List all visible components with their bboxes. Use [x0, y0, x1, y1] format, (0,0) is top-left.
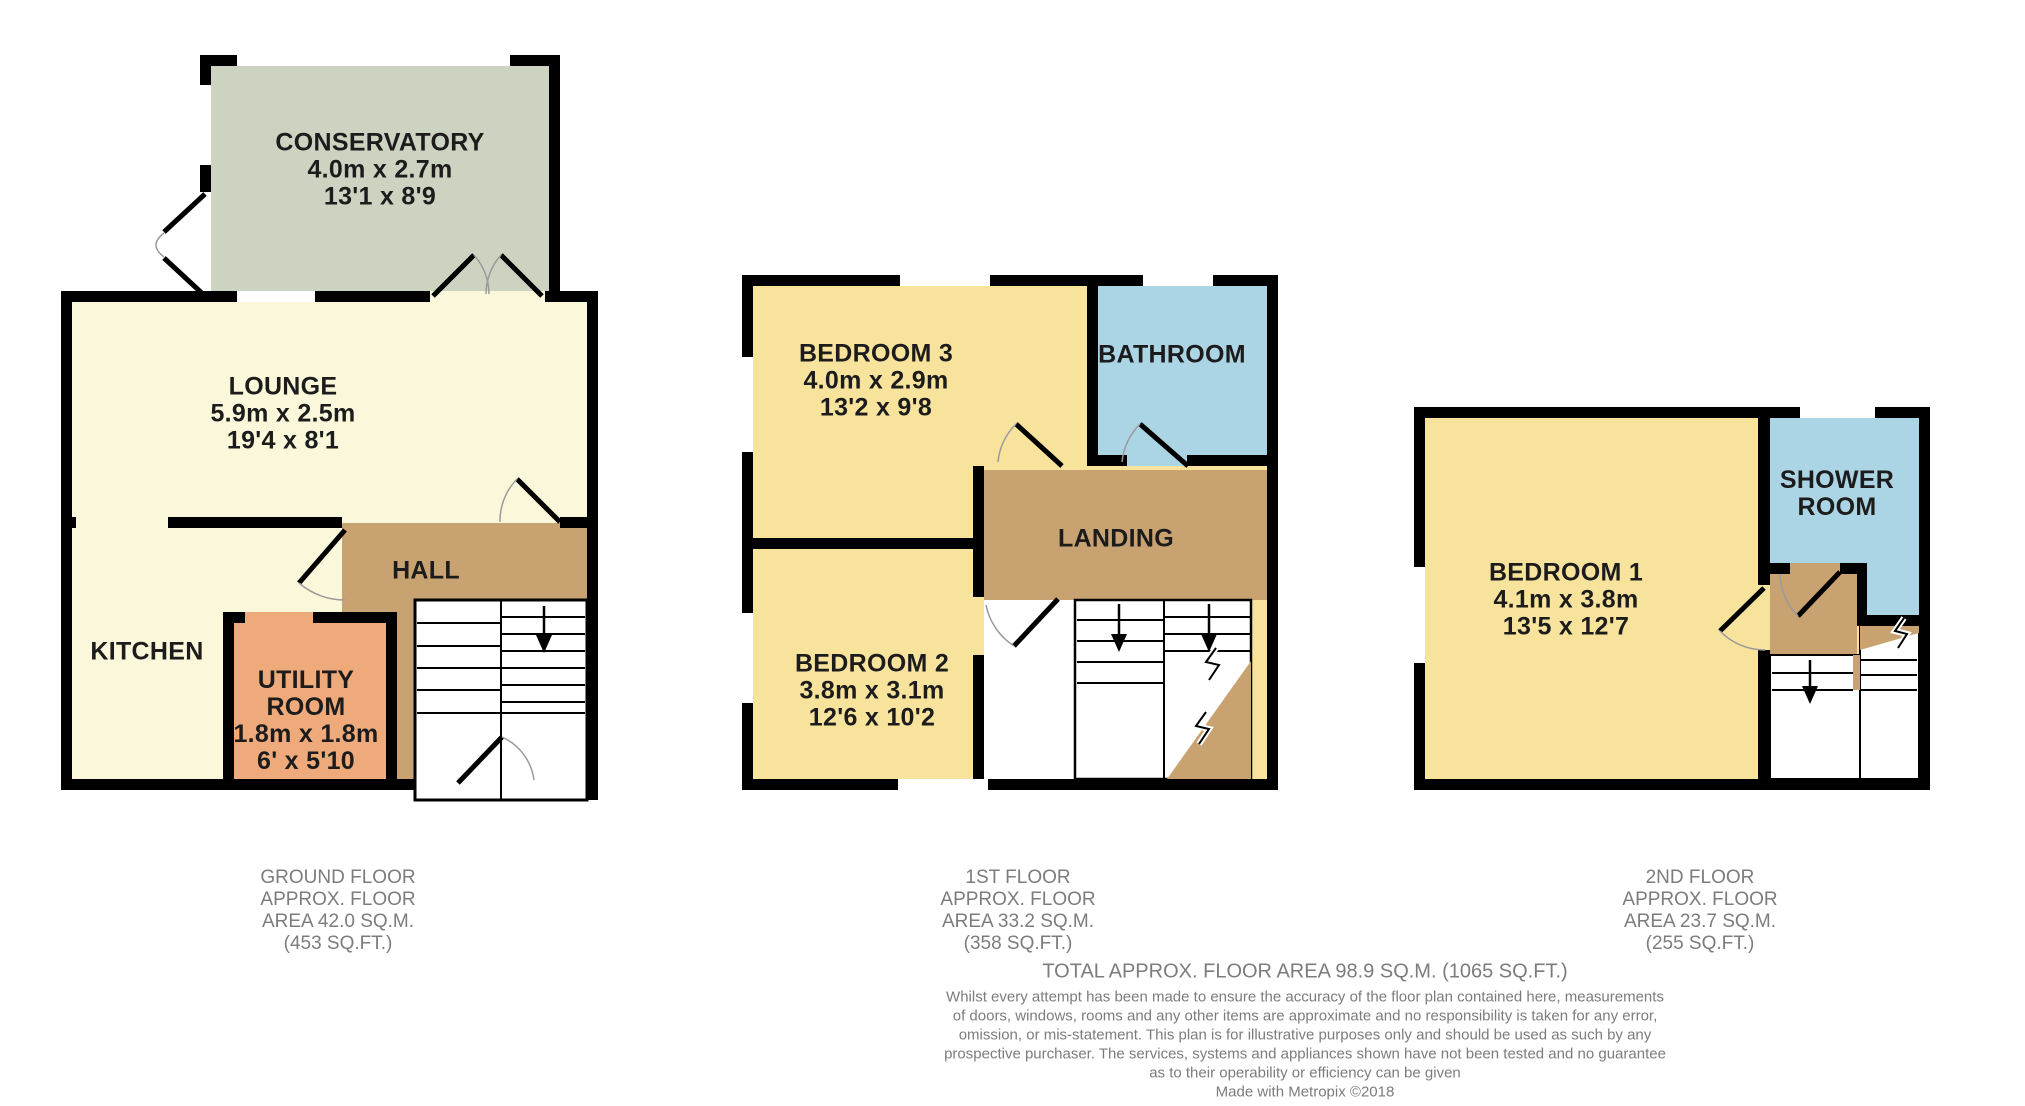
wall: [560, 517, 598, 528]
wall: [1187, 455, 1267, 466]
caption-line: (453 SQ.FT.): [260, 933, 415, 955]
wall: [313, 612, 397, 623]
window: [742, 357, 753, 452]
room-landing-2: [1770, 563, 1857, 655]
wall: [223, 612, 234, 779]
room-name: HALL: [392, 558, 460, 585]
room-label-bedroom-2: BEDROOM 2 3.8m x 3.1m 12'6 x 10'2: [795, 651, 949, 732]
disclaimer-line: as to their operability or efficiency ca…: [944, 1064, 1666, 1083]
door-leaf: [164, 258, 205, 296]
floorplan-canvas: CONSERVATORY 4.0m x 2.7m 13'1 x 8'9 LOUN…: [0, 0, 2025, 1106]
wall: [545, 291, 560, 302]
wall: [587, 291, 598, 800]
room-dims-imperial: 13'1 x 8'9: [275, 184, 484, 211]
caption-line: 2ND FLOOR: [1622, 867, 1777, 889]
room-label-bedroom-1: BEDROOM 1 4.1m x 3.8m 13'5 x 12'7: [1489, 560, 1643, 641]
wall: [1087, 286, 1098, 466]
second-stairs-right: [1860, 626, 1919, 779]
door-arc: [156, 233, 164, 257]
room-bathroom: [1098, 286, 1267, 466]
caption-line: AREA 33.2 SQ.M.: [940, 911, 1095, 933]
metropix-credit: Made with Metropix ©2018: [1216, 1084, 1395, 1101]
wall: [1840, 563, 1857, 574]
wall: [168, 517, 342, 528]
room-name: UTILITY: [233, 667, 378, 694]
wall: [200, 291, 237, 302]
room-dims-metric: 4.0m x 2.7m: [275, 157, 484, 184]
room-name: BEDROOM 3: [799, 341, 953, 368]
room-dims-imperial: 13'2 x 9'8: [799, 395, 953, 422]
room-name: LANDING: [1058, 526, 1174, 553]
wall: [973, 466, 984, 549]
caption-second-floor: 2ND FLOOR APPROX. FLOOR AREA 23.7 SQ.M. …: [1622, 867, 1777, 955]
stair-divider-strip: [1853, 655, 1860, 690]
room-name: LOUNGE: [210, 374, 355, 401]
room-dims-metric: 5.9m x 2.5m: [210, 401, 355, 428]
caption-line: APPROX. FLOOR: [260, 889, 415, 911]
room-dims-metric: 1.8m x 1.8m: [233, 721, 378, 748]
door-leaf: [164, 194, 205, 232]
window: [200, 85, 211, 165]
caption-line: (358 SQ.FT.): [940, 933, 1095, 955]
room-label-landing: LANDING: [1058, 526, 1174, 553]
room-name: KITCHEN: [90, 639, 203, 666]
wall: [1758, 650, 1770, 779]
room-label-conservatory: CONSERVATORY 4.0m x 2.7m 13'1 x 8'9: [275, 130, 484, 211]
window: [898, 779, 988, 790]
window: [1414, 567, 1425, 663]
caption-line: APPROX. FLOOR: [940, 889, 1095, 911]
wall: [1919, 407, 1930, 790]
total-floor-area: TOTAL APPROX. FLOOR AREA 98.9 SQ.M. (106…: [1042, 961, 1567, 984]
wall: [1770, 563, 1790, 574]
caption-line: 1ST FLOOR: [940, 867, 1095, 889]
room-dims-metric: 4.0m x 2.9m: [799, 368, 953, 395]
caption-first-floor: 1ST FLOOR APPROX. FLOOR AREA 33.2 SQ.M. …: [940, 867, 1095, 955]
caption-line: AREA 23.7 SQ.M.: [1622, 911, 1777, 933]
caption-line: (255 SQ.FT.): [1622, 933, 1777, 955]
room-dims-imperial: 6' x 5'10: [233, 748, 378, 775]
room-label-lounge: LOUNGE 5.9m x 2.5m 19'4 x 8'1: [210, 374, 355, 455]
wall: [315, 291, 430, 302]
window: [742, 613, 753, 703]
wall: [61, 291, 72, 790]
wall: [61, 291, 200, 302]
wall: [753, 538, 984, 549]
wall: [973, 549, 984, 597]
room-label-bedroom-3: BEDROOM 3 4.0m x 2.9m 13'2 x 9'8: [799, 341, 953, 422]
window: [1800, 407, 1875, 418]
room-label-hall: HALL: [392, 558, 460, 585]
room-name: BATHROOM: [1098, 342, 1246, 369]
room-name: CONSERVATORY: [275, 130, 484, 157]
wall: [973, 655, 984, 779]
window: [237, 291, 315, 302]
disclaimer-line: Whilst every attempt has been made to en…: [944, 988, 1666, 1007]
wall: [1267, 275, 1278, 790]
wall: [549, 55, 560, 302]
room-dims-metric: 3.8m x 3.1m: [795, 678, 949, 705]
disclaimer-line: of doors, windows, rooms and any other i…: [944, 1007, 1666, 1026]
utility-door-gap: [245, 612, 313, 623]
room-dims-imperial: 13'5 x 12'7: [1489, 614, 1643, 641]
room-dims-metric: 4.1m x 3.8m: [1489, 587, 1643, 614]
wall: [1758, 418, 1770, 585]
wall: [1867, 615, 1919, 626]
window: [1143, 275, 1213, 286]
wall: [742, 275, 753, 790]
room-name: ROOM: [233, 694, 378, 721]
caption-line: AREA 42.0 SQ.M.: [260, 911, 415, 933]
room-dims-imperial: 19'4 x 8'1: [210, 428, 355, 455]
wall: [386, 612, 397, 779]
wall: [223, 612, 245, 623]
wall: [1857, 563, 1867, 626]
room-label-bathroom: BATHROOM: [1098, 342, 1246, 369]
caption-line: GROUND FLOOR: [260, 867, 415, 889]
wall: [61, 779, 415, 790]
disclaimer-line: prospective purchaser. The services, sys…: [944, 1045, 1666, 1064]
caption-ground-floor: GROUND FLOOR APPROX. FLOOR AREA 42.0 SQ.…: [260, 867, 415, 955]
wall: [1087, 455, 1127, 466]
window: [900, 275, 990, 286]
wall: [742, 779, 1278, 790]
window: [237, 55, 510, 66]
disclaimer-line: omission, or mis-statement. This plan is…: [944, 1026, 1666, 1045]
caption-line: APPROX. FLOOR: [1622, 889, 1777, 911]
room-label-utility: UTILITY ROOM 1.8m x 1.8m 6' x 5'10: [233, 667, 378, 775]
door-opening: [200, 192, 211, 291]
room-label-kitchen: KITCHEN: [90, 639, 203, 666]
room-name: BEDROOM 2: [795, 651, 949, 678]
room-label-shower-room: SHOWER ROOM: [1780, 467, 1894, 521]
room-dims-imperial: 12'6 x 10'2: [795, 705, 949, 732]
room-name: BEDROOM 1: [1489, 560, 1643, 587]
wall: [61, 517, 76, 528]
disclaimer-text: Whilst every attempt has been made to en…: [944, 988, 1666, 1083]
wall: [1414, 779, 1930, 790]
room-name: SHOWER: [1780, 467, 1894, 494]
room-name: ROOM: [1780, 494, 1894, 521]
